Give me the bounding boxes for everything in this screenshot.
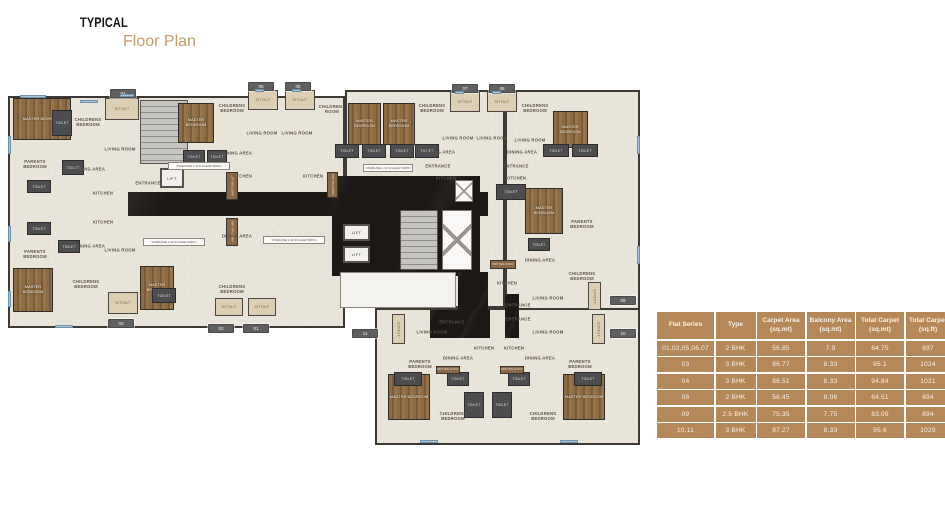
table-data-cell: 01,02,05,06,07 bbox=[657, 341, 714, 356]
table-data-cell: 86.77 bbox=[757, 357, 805, 372]
area-table: Flat SeriesTypeCarpet Area (sq.mt)Balcon… bbox=[656, 311, 945, 439]
room-label: KITCHEN bbox=[490, 280, 524, 285]
room-label: LIVING ROOM bbox=[245, 130, 279, 135]
bedroom: MASTER BEDROOM bbox=[383, 103, 415, 145]
sitout: SITOUT bbox=[248, 90, 278, 110]
table-data-cell: 87.27 bbox=[757, 423, 805, 438]
table-data-cell: 2 BHK bbox=[716, 390, 756, 405]
toilet-room: TOILET bbox=[362, 144, 386, 158]
room-label: LIVING ROOM bbox=[103, 146, 137, 151]
window-sill bbox=[455, 91, 464, 94]
window-sill bbox=[55, 325, 73, 328]
table-data-cell: 8.33 bbox=[807, 357, 855, 372]
room-label: LIVING ROOM bbox=[475, 135, 509, 140]
table-data-cell: 8.33 bbox=[807, 374, 855, 389]
window-sill bbox=[120, 94, 134, 97]
toilet-room: TOILET bbox=[492, 392, 512, 418]
dry-balcony: DRY BALCONY bbox=[490, 260, 516, 269]
toilet-room: TOILET bbox=[394, 372, 422, 386]
lift: LIFT bbox=[343, 246, 370, 263]
table-data-cell: 3 BHK bbox=[716, 357, 756, 372]
table-data-cell: 2 BHK bbox=[716, 341, 756, 356]
staircase-width-strip: STAIRCASE 1.40 M CLEAR WIDTH bbox=[263, 236, 325, 244]
toilet-room: TOILET bbox=[543, 144, 569, 157]
room-label: KITCHEN bbox=[225, 173, 259, 178]
room-label: LIVING ROOM bbox=[415, 329, 449, 334]
table-data-cell: 1021 bbox=[906, 374, 945, 389]
sitout: SITOUT bbox=[592, 314, 605, 344]
table-data-cell: 2.5 BHK bbox=[716, 407, 756, 422]
room-label: KITCHEN bbox=[296, 173, 330, 178]
toilet-room: TOILET bbox=[574, 372, 602, 386]
room-label: LIVING ROOM bbox=[280, 130, 314, 135]
table-data-cell: 894 bbox=[906, 407, 945, 422]
unit-number-tag: 01 bbox=[243, 324, 269, 333]
room-label: CHILDRENS BEDROOM bbox=[526, 411, 560, 421]
window-sill bbox=[420, 440, 438, 443]
page-title: TYPICAL Floor Plan bbox=[80, 14, 196, 51]
room-label: KITCHEN bbox=[86, 190, 120, 195]
toilet-room: TOILET bbox=[390, 144, 414, 158]
table-data-cell: 697 bbox=[906, 341, 945, 356]
table-header-cell: Total Carpet (sq.mt) bbox=[856, 312, 904, 339]
unit-number-tag: 10 bbox=[610, 329, 636, 338]
window-sill bbox=[8, 226, 11, 242]
room-label: PARENTS BEDROOM bbox=[403, 359, 437, 369]
duct-shaft bbox=[442, 210, 472, 270]
table-data-cell: 86.51 bbox=[757, 374, 805, 389]
room-label: PARENTS BEDROOM bbox=[18, 249, 52, 259]
table-data-cell: 83.09 bbox=[856, 407, 904, 422]
room-label: CHILDRENS BEDROOM bbox=[415, 103, 449, 113]
sitout: SITOUT bbox=[285, 90, 315, 110]
title-typical: TYPICAL bbox=[80, 14, 170, 30]
table-data-cell: 8.06 bbox=[807, 390, 855, 405]
table-header-cell: Carpet Area (sq.mt) bbox=[757, 312, 805, 339]
toilet-room: TOILET bbox=[447, 372, 469, 386]
bedroom: MASTER BEDROOM bbox=[178, 103, 214, 143]
window-sill bbox=[560, 440, 578, 443]
room-label: ENTRANCE bbox=[501, 302, 535, 307]
bedroom: MASTER BEDROOM bbox=[525, 188, 563, 234]
table-data-cell: 64.51 bbox=[856, 390, 904, 405]
toilet-room: TOILET bbox=[152, 288, 176, 303]
room-label: CHILDRENS BEDROOM bbox=[71, 117, 105, 127]
table-data-cell: 03 bbox=[657, 357, 714, 372]
window-sill bbox=[8, 291, 11, 307]
table-data-cell: 1024 bbox=[906, 357, 945, 372]
toilet-room: TOILET bbox=[27, 222, 51, 235]
room-label: LIVING ROOM bbox=[531, 329, 565, 334]
window-sill bbox=[637, 246, 640, 264]
table-data-cell: 10,11 bbox=[657, 423, 714, 438]
room-label: DINING AREA bbox=[441, 355, 475, 360]
toilet-room: TOILET bbox=[27, 180, 51, 193]
room-label: LIVING ROOM bbox=[441, 135, 475, 140]
room-label: CHILDRENS BEDROOM bbox=[215, 103, 249, 113]
room-label: KITCHEN bbox=[467, 345, 501, 350]
room-label: LIVING ROOM bbox=[103, 247, 137, 252]
room-label: DINING AREA bbox=[220, 233, 254, 238]
table-data-cell: 56.85 bbox=[757, 341, 805, 356]
room-label: DINING AREA bbox=[220, 150, 254, 155]
window-sill bbox=[255, 89, 264, 92]
table-data-cell: 694 bbox=[906, 390, 945, 405]
sitout: SITOUT bbox=[392, 314, 405, 344]
room-label: CHILDRENS BEDROOM bbox=[565, 271, 599, 281]
room-label: DINING AREA bbox=[73, 243, 107, 248]
title-floor-plan: Floor Plan bbox=[123, 33, 196, 51]
room-label: DINING AREA bbox=[505, 149, 539, 154]
room-label: ENTRANCE bbox=[421, 163, 455, 168]
room-label: DINING AREA bbox=[423, 149, 457, 154]
room-label: DINING AREA bbox=[523, 257, 557, 262]
table-header-cell: Flat Series bbox=[657, 312, 714, 339]
sitout: SITOUT bbox=[215, 298, 243, 316]
entrance-lobby bbox=[340, 272, 456, 308]
sitout: SITOUT bbox=[248, 298, 276, 316]
room-label: ENTRANCE bbox=[435, 319, 469, 324]
table-data-cell: 08 bbox=[657, 390, 714, 405]
floor-plan: LIFTLIFTLIFTMASTER BEDROOMMASTER BEDROOM… bbox=[0, 76, 648, 462]
table-data-cell: 56.45 bbox=[757, 390, 805, 405]
room-label: ENTRANCE bbox=[499, 163, 533, 168]
room-label: CHILDRENS BEDROOM bbox=[436, 411, 470, 421]
toilet-room: TOILET bbox=[335, 144, 359, 158]
table-header-cell: Total Carpet (sq.ft) bbox=[906, 312, 945, 339]
table-data-cell: 1029 bbox=[906, 423, 945, 438]
staircase-width-strip: STAIRCASE 1.40 M CLEAR WIDTH bbox=[363, 164, 413, 172]
room-label: CHILDRENS ROOM bbox=[315, 104, 349, 114]
room-label: CHILDRENS BEDROOM bbox=[69, 279, 103, 289]
table-data-cell: 3 BHK bbox=[716, 423, 756, 438]
room-label: KITCHEN bbox=[497, 345, 531, 350]
room-label: KITCHEN bbox=[429, 175, 463, 180]
window-sill bbox=[292, 89, 301, 92]
sitout: SITOUT bbox=[450, 92, 480, 112]
staircase bbox=[400, 210, 438, 270]
unit-number-tag: 02 bbox=[208, 324, 234, 333]
window-sill bbox=[8, 136, 11, 154]
table-data-cell: 75.35 bbox=[757, 407, 805, 422]
bedroom: MASTER BEDROOM bbox=[13, 268, 53, 312]
room-label: KITCHEN bbox=[499, 175, 533, 180]
sitout: SITOUT bbox=[108, 292, 138, 314]
window-sill bbox=[637, 136, 640, 154]
dry-balcony: DRY BALCONY bbox=[226, 218, 238, 246]
room-label: DINING AREA bbox=[73, 166, 107, 171]
bedroom: MASTER BEDROOM bbox=[348, 103, 381, 145]
sitout: SITOUT bbox=[105, 98, 139, 120]
table-header-cell: Type bbox=[716, 312, 756, 339]
table-data-cell: 7.9 bbox=[807, 341, 855, 356]
table-data-cell: 3 BHK bbox=[716, 374, 756, 389]
table-data-cell: 04 bbox=[657, 374, 714, 389]
toilet-room: TOILET bbox=[496, 184, 526, 200]
table-data-cell: 09 bbox=[657, 407, 714, 422]
table-data-cell: 8.33 bbox=[807, 423, 855, 438]
table-data-cell: 95.6 bbox=[856, 423, 904, 438]
dry-balcony: DRY BALCONY bbox=[500, 366, 524, 374]
toilet-room: TOILET bbox=[52, 110, 72, 136]
table-header-cell: Balcony Area (sq.mt) bbox=[807, 312, 855, 339]
window-sill bbox=[80, 100, 98, 103]
table-data-cell: 95.1 bbox=[856, 357, 904, 372]
room-label: LIVING ROOM bbox=[531, 295, 565, 300]
unit-number-tag: 03 bbox=[108, 319, 134, 328]
table-data-cell: 7.75 bbox=[807, 407, 855, 422]
duct-shaft bbox=[455, 180, 473, 202]
staircase-width-strip: STAIRCASE 1.40 M CLEAR WIDTH bbox=[168, 162, 230, 170]
room-label: CHILDRENS BEDROOM bbox=[215, 284, 249, 294]
room-label: ENTRANCE bbox=[131, 180, 165, 185]
window-sill bbox=[492, 91, 501, 94]
room-label: PARENTS BEDROOM bbox=[565, 219, 599, 229]
dry-balcony: DRY BALCONY bbox=[436, 366, 460, 374]
toilet-room: TOILET bbox=[508, 372, 530, 386]
sitout: SITOUT bbox=[487, 92, 517, 112]
table-data-cell: 94.84 bbox=[856, 374, 904, 389]
room-label: ENTRANCE bbox=[501, 316, 535, 321]
room-label: KITCHEN bbox=[86, 219, 120, 224]
window-sill bbox=[20, 95, 46, 98]
table-data-cell: 64.75 bbox=[856, 341, 904, 356]
room-label: LIVING ROOM bbox=[513, 137, 547, 142]
page: TYPICAL Floor Plan LIFTLIFTLIFTMASTER BE… bbox=[0, 0, 945, 525]
staircase-width-strip: STAIRCASE 1.40 M CLEAR WIDTH bbox=[143, 238, 205, 246]
room-label: CHILDRENS BEDROOM bbox=[518, 103, 552, 113]
room-label: PARENTS BEDROOM bbox=[18, 159, 52, 169]
toilet-room: TOILET bbox=[528, 238, 550, 251]
bedroom: MASTER BEDROOM bbox=[553, 111, 588, 148]
sitout: SITOUT bbox=[588, 282, 601, 310]
room-label: DINING AREA bbox=[523, 355, 557, 360]
unit-number-tag: 11 bbox=[352, 329, 378, 338]
unit-number-tag: 09 bbox=[610, 296, 636, 305]
lift: LIFT bbox=[343, 224, 370, 241]
room-label: PARENTS BEDROOM bbox=[563, 359, 597, 369]
toilet-room: TOILET bbox=[572, 144, 598, 157]
